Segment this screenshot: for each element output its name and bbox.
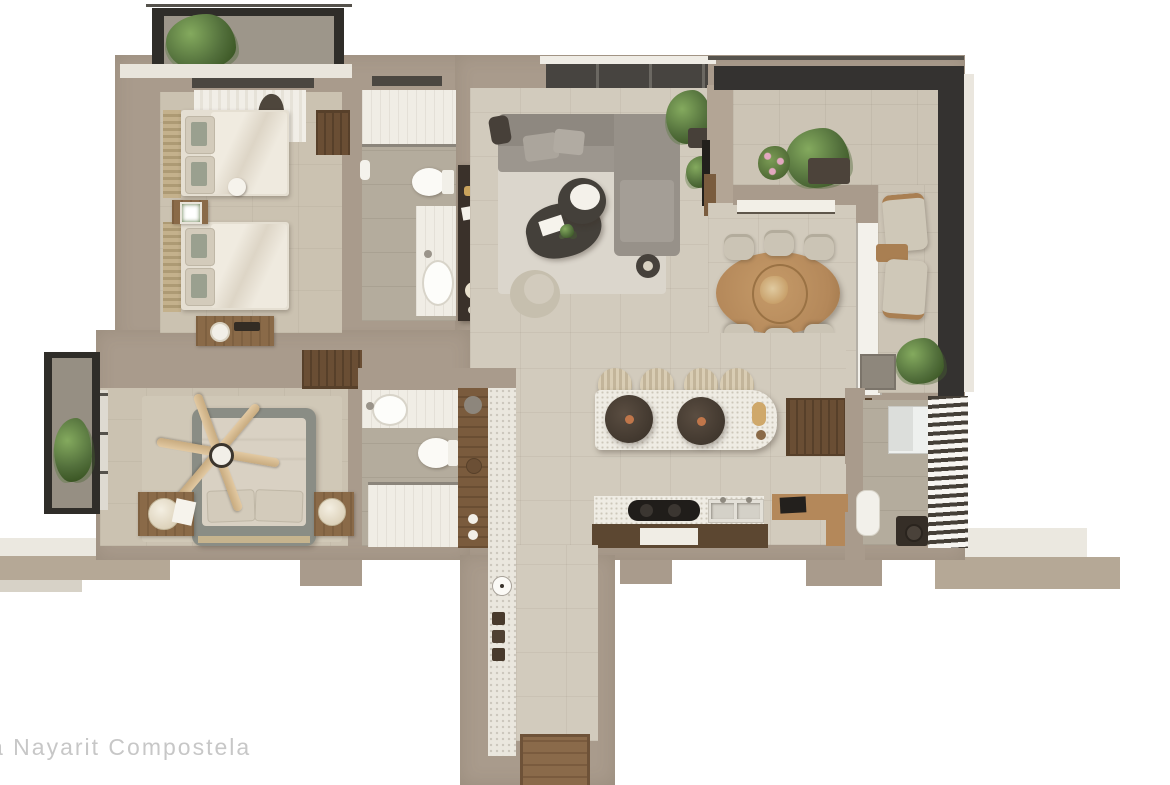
desk-accessories — [234, 322, 260, 331]
island-tray — [752, 402, 766, 426]
faucet-bathroom-2 — [424, 250, 432, 258]
dining-chair — [724, 234, 754, 260]
pendant-bulb — [697, 417, 706, 426]
sink-master — [372, 394, 408, 426]
terrace-pot-box — [860, 354, 896, 390]
twin-bed-1-headboard — [163, 110, 181, 198]
desk-mirror — [210, 322, 230, 342]
island-candle — [756, 430, 766, 440]
lamp-master-right — [318, 498, 346, 526]
toilet-tank-bathroom-2 — [442, 170, 454, 194]
pillar-stub-center — [620, 560, 672, 584]
side-table-candle — [643, 261, 653, 271]
master-closet-shelves — [302, 350, 362, 389]
kitchen-sink — [708, 499, 764, 523]
louvered-screen — [928, 396, 968, 548]
wall-hook — [492, 648, 505, 661]
twin-bed-1-pillow-accent-a — [191, 122, 207, 146]
wall-hook — [492, 630, 505, 643]
kitchen-base-cabinet — [592, 524, 768, 548]
pillar-stub-right — [806, 560, 882, 586]
pillar-stub-left — [300, 560, 362, 586]
cooktop — [628, 500, 700, 521]
pendant-lamp-2 — [677, 397, 725, 445]
wall-clock — [492, 576, 512, 596]
towel-ring — [360, 160, 370, 180]
burner — [668, 504, 681, 517]
pebble-accent-wall — [488, 388, 516, 756]
pendant-lamp-1 — [605, 395, 653, 443]
water-heater — [856, 490, 880, 536]
terrace-slab-edge — [964, 74, 974, 392]
terrace-railing-top — [714, 66, 962, 90]
lounge-chair-2 — [882, 259, 928, 321]
shower-master — [368, 482, 458, 547]
laptop — [780, 496, 807, 513]
throw-pillow-b — [553, 128, 585, 155]
hook-dot — [468, 514, 478, 524]
sofa-chaise-cushion — [620, 180, 674, 242]
wall-hook — [492, 612, 505, 625]
faucet-master — [366, 402, 374, 410]
toilet-tank-master — [448, 440, 458, 466]
ceiling-fan-hub — [209, 443, 234, 468]
dining-chair — [764, 230, 794, 256]
toilet-bathroom-2 — [412, 168, 446, 196]
dining-buffet — [737, 200, 835, 214]
master-pillow-right — [254, 489, 303, 523]
sink-faucet — [720, 497, 726, 503]
hook-dot — [468, 530, 478, 540]
round-cushion — [228, 178, 246, 196]
sink-basin — [711, 503, 734, 519]
twin-bed-1-pillow-accent-b — [191, 162, 207, 186]
accent-chair-seat — [524, 274, 554, 304]
terrace-corner-plant — [896, 338, 944, 384]
twin-bed-2-pillow-accent-b — [191, 274, 207, 298]
clock-center — [500, 584, 504, 588]
sink-faucet — [746, 497, 752, 503]
hallway-floor — [516, 545, 598, 741]
entry-mat — [520, 734, 590, 785]
twin-bed-2-duvet — [211, 224, 287, 308]
wardrobe-shelf — [316, 110, 350, 155]
floor-plan-rendering: a Nayarit Compostela — [0, 0, 1170, 785]
burner — [640, 504, 653, 517]
kitchen-east-wall-upper — [845, 388, 865, 464]
twin-bed-1-duvet — [211, 112, 287, 194]
coffee-table-plate — [570, 184, 600, 210]
laundry-cabinet-door — [889, 407, 913, 451]
wall-speaker — [464, 396, 482, 414]
sink-bathroom-2 — [422, 260, 454, 306]
balcony-plant — [166, 14, 236, 70]
desk-bedroom-2 — [196, 316, 274, 346]
pendant-bulb — [625, 415, 634, 424]
terrace-railing-right — [938, 66, 964, 396]
picture-frame — [180, 202, 202, 224]
ledge-right-face — [935, 557, 1120, 589]
speaker-box — [896, 516, 928, 546]
bed-runner — [198, 536, 310, 543]
ledge-left-step — [0, 580, 82, 592]
watermark-text: a Nayarit Compostela — [0, 734, 251, 761]
terrace-rail-line — [708, 56, 964, 60]
master-balcony-plant — [54, 418, 92, 482]
terrace-wall-stub — [856, 185, 878, 223]
coffee-table-sprig — [560, 224, 574, 238]
cabinet-drawer — [640, 528, 698, 545]
speaker-cone — [905, 524, 923, 542]
bathroom-2-shower — [362, 90, 456, 146]
balcony-rail-line — [146, 4, 352, 7]
terrace-planter-box — [808, 158, 850, 184]
living-window-slab — [540, 56, 716, 64]
balcony-slab-edge — [120, 64, 352, 78]
living-window — [546, 64, 708, 88]
master-bath-north-wall — [358, 368, 516, 390]
wood-knob — [466, 458, 482, 474]
dining-chair — [804, 234, 834, 260]
accent-chair — [510, 270, 560, 318]
sink-basin — [737, 503, 760, 519]
bathroom-2-window — [372, 76, 442, 86]
twin-bed-2-pillow-accent-a — [191, 234, 207, 258]
twin-bed-2-headboard — [163, 222, 181, 312]
